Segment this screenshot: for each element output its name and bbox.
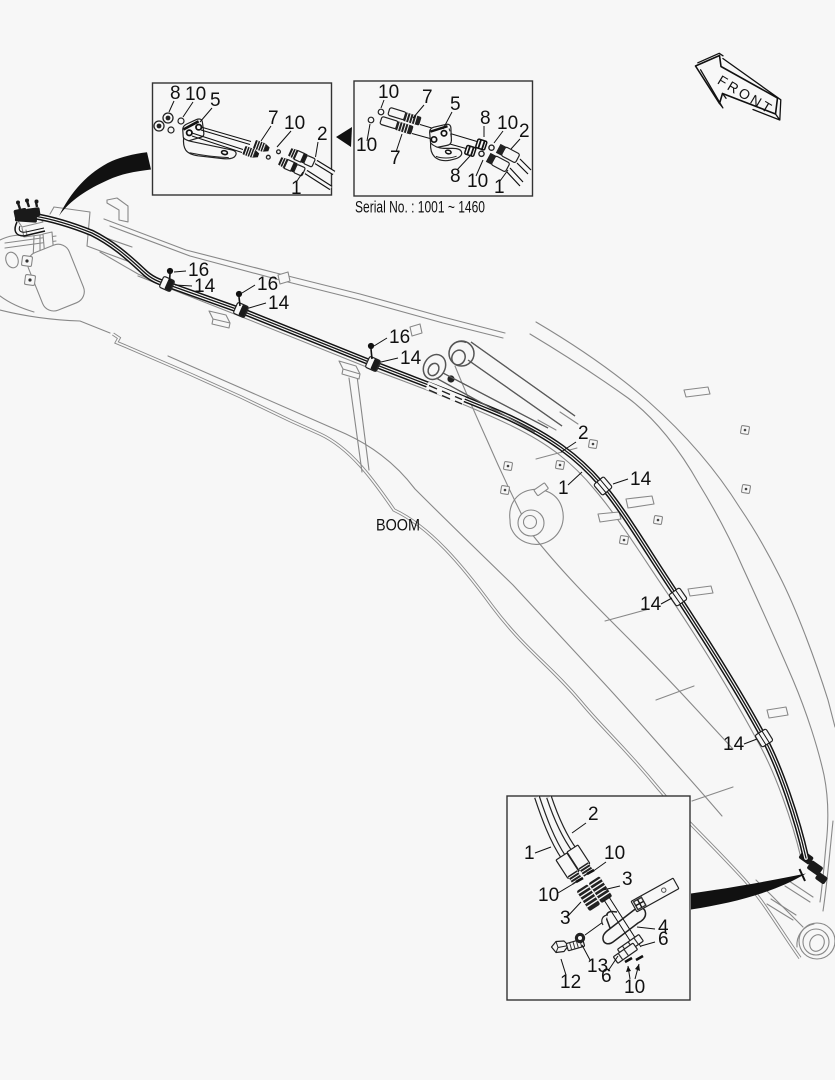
svg-text:BOOM: BOOM	[376, 517, 420, 535]
svg-text:10: 10	[624, 977, 645, 998]
svg-text:8: 8	[450, 166, 461, 187]
svg-text:7: 7	[268, 108, 279, 129]
svg-text:10: 10	[604, 843, 625, 864]
svg-text:14: 14	[268, 293, 290, 314]
svg-text:12: 12	[560, 972, 581, 993]
svg-text:10: 10	[467, 171, 488, 192]
svg-text:2: 2	[317, 124, 328, 145]
svg-text:10: 10	[538, 885, 559, 906]
svg-text:10: 10	[284, 113, 305, 134]
svg-text:14: 14	[194, 276, 216, 297]
svg-text:8: 8	[480, 108, 491, 129]
svg-text:2: 2	[588, 804, 599, 825]
svg-text:14: 14	[723, 734, 745, 755]
svg-text:10: 10	[497, 113, 518, 134]
svg-text:14: 14	[640, 594, 662, 615]
svg-text:14: 14	[400, 348, 422, 369]
svg-text:14: 14	[630, 469, 652, 490]
svg-text:10: 10	[356, 135, 377, 156]
svg-text:3: 3	[560, 908, 571, 929]
svg-text:2: 2	[519, 121, 530, 142]
svg-text:10: 10	[185, 84, 206, 105]
svg-text:3: 3	[622, 869, 633, 890]
svg-text:7: 7	[390, 148, 401, 169]
svg-text:1: 1	[558, 478, 569, 499]
svg-text:10: 10	[378, 82, 399, 103]
svg-text:1: 1	[291, 178, 302, 199]
svg-text:1: 1	[524, 843, 535, 864]
svg-text:16: 16	[257, 274, 278, 295]
svg-text:6: 6	[601, 966, 612, 987]
svg-text:2: 2	[578, 423, 589, 444]
svg-text:8: 8	[170, 83, 181, 104]
svg-text:6: 6	[658, 929, 669, 950]
svg-text:Serial No. : 1001 ~ 1460: Serial No. : 1001 ~ 1460	[355, 199, 485, 217]
svg-text:16: 16	[389, 327, 410, 348]
svg-text:1: 1	[494, 177, 505, 198]
